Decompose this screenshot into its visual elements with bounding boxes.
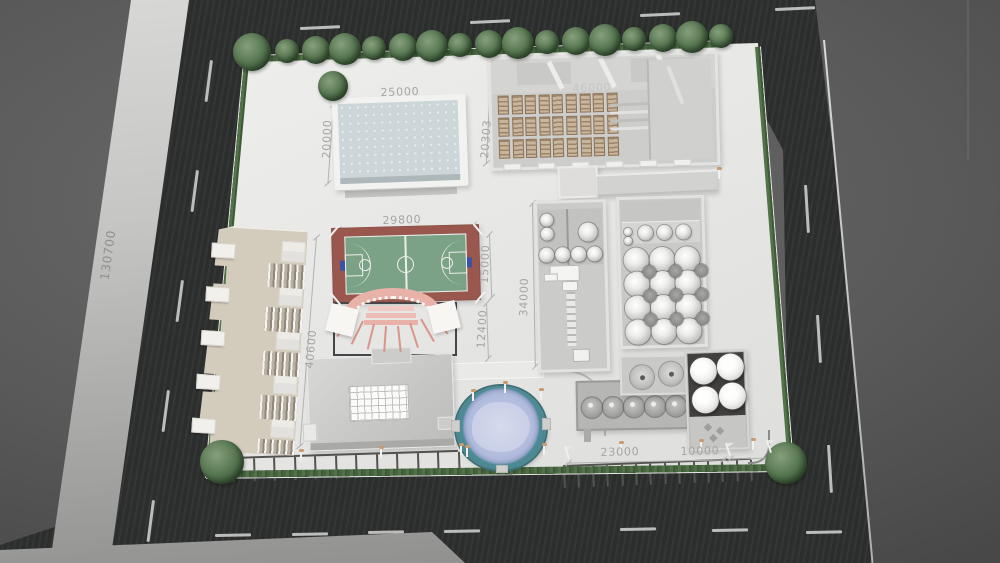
dim-pool-depth: 20000 [320,119,334,158]
water-basin [331,94,468,191]
pond-deck [496,465,508,473]
skylight-grid [348,384,409,422]
pond-deck [542,418,551,430]
street-lamp [460,446,462,455]
hall-upper-floor [621,200,699,222]
balcony-strip [257,439,295,455]
pallet-stack [512,117,523,136]
pallet-stack [498,95,509,114]
street-lamp [504,384,506,393]
funnel-tank [659,361,683,385]
dim-court-depth: 15000 [478,244,492,283]
balcony-strip [259,395,297,421]
roadside-tree [676,21,708,53]
site-plan-render: 130700 25000 20000 20303 46000 29800 150… [0,0,1000,563]
west-window-box [196,374,221,390]
dock-door [537,162,555,169]
pallet-storage-area [498,92,626,163]
roadside-tree [709,24,733,48]
west-window-box [205,286,230,302]
conveyor-line [565,291,577,347]
prep-workshop [534,199,610,373]
yard-round-tank [645,396,665,416]
pallet-stack [525,95,536,114]
dock-door [639,160,657,167]
plaza-walkway [448,361,544,381]
balcony-strip [265,307,303,333]
pallet-stack [567,138,578,157]
roadside-tree [389,33,417,61]
basin-water [338,100,461,178]
dim-pool-width: 25000 [380,85,419,99]
roadside-tree [416,30,448,62]
rooftop-vent-box [371,347,412,364]
roadside-tree [275,39,299,63]
background-wall-edge [967,0,969,160]
corner-tree [765,442,807,484]
dim-court-width: 29800 [382,213,421,227]
dim-stage-depth: 12400 [474,309,489,349]
corner-tree [318,71,348,101]
west-window-box [211,242,236,258]
funnel-tank [630,365,654,389]
pallet-stack [606,93,617,112]
street-lamp [466,448,468,457]
dim-warehouse-width: 46000 [572,81,611,95]
hall-building [306,353,455,451]
east-room-floor [649,58,714,160]
lane-marking [215,533,251,537]
pallet-stack [525,117,536,136]
dock-door [503,163,521,170]
pond-deck [451,420,460,432]
pallet-stack [499,139,510,158]
street-lamp [380,449,382,458]
roadside-tree [589,24,621,56]
mixer-machine-arm [544,273,558,281]
tank-hall-workshop [616,195,708,349]
warehouse-roof-panel [517,62,572,85]
office-building [193,224,308,456]
lane-marking [806,530,842,534]
mixer-machine-head [562,281,578,291]
pallet-stack [512,139,523,158]
lane-marking [292,532,328,536]
yard-pipe [584,429,591,442]
roadside-tree [649,24,677,52]
dim-workshop-depth: 34000 [517,277,531,316]
basketball-hoop-left [340,261,345,271]
roadside-tree [622,27,646,51]
street-lamp [543,446,545,455]
street-lamp [472,392,474,401]
street-lamp [718,170,720,179]
yard-round-tank [666,396,686,416]
pallet-stack [539,138,550,157]
pallet-stack [594,137,605,156]
warehouse-building [488,51,721,171]
pond-highlight [472,402,530,452]
basketball-hoop-right [467,257,472,267]
west-window-box [191,418,216,434]
balcony-strip [262,351,300,377]
silo-yard [684,349,749,451]
roadside-tree [362,36,386,60]
roadside-tree [302,36,330,64]
link-corridor-north [557,165,598,198]
pallet-stack [579,93,590,112]
conveyor-end-station [573,349,590,362]
pallet-stack [498,117,509,136]
pallet-stack [607,137,618,156]
pallet-stack [580,137,591,156]
dim-parking-width: 23000 [600,445,639,459]
pallet-stack [566,94,577,113]
yard-round-tank [582,398,602,418]
street-lamp [540,391,542,400]
street-lamp [752,441,754,450]
dim-tank-yard-width: 10000 [680,444,719,458]
street-lamp [300,452,302,461]
lane-marking [712,528,748,532]
pallet-stack [538,94,549,113]
garden-pond [456,384,552,472]
pallet-stack [566,116,577,135]
yard-round-tank [624,397,644,417]
pallet-stack [539,116,550,135]
west-window-box [201,330,226,346]
roadside-tree [562,27,590,55]
roadside-tree [329,33,361,65]
lane-marking [620,527,656,531]
pallet-stack [607,115,618,134]
pallet-stack [553,116,564,135]
pallet-stack [552,94,563,113]
dock-door [673,159,691,166]
yard-round-tank [603,397,623,417]
corner-tree [200,440,244,484]
pallet-stack [580,115,591,134]
dim-warehouse-depth: 20303 [478,119,494,159]
east-roof-cube [281,241,306,263]
lane-marking [444,529,480,533]
pallet-stack [553,138,564,157]
pallet-stack [511,95,522,114]
pallet-stack [526,139,537,158]
pallet-stack [593,93,604,112]
corner-tree [233,33,271,71]
balcony-strip [267,263,305,289]
entrance-canopy [303,423,318,441]
pallet-stack [593,115,604,134]
dock-door [605,161,623,168]
funnel-tank-platform [620,354,689,395]
